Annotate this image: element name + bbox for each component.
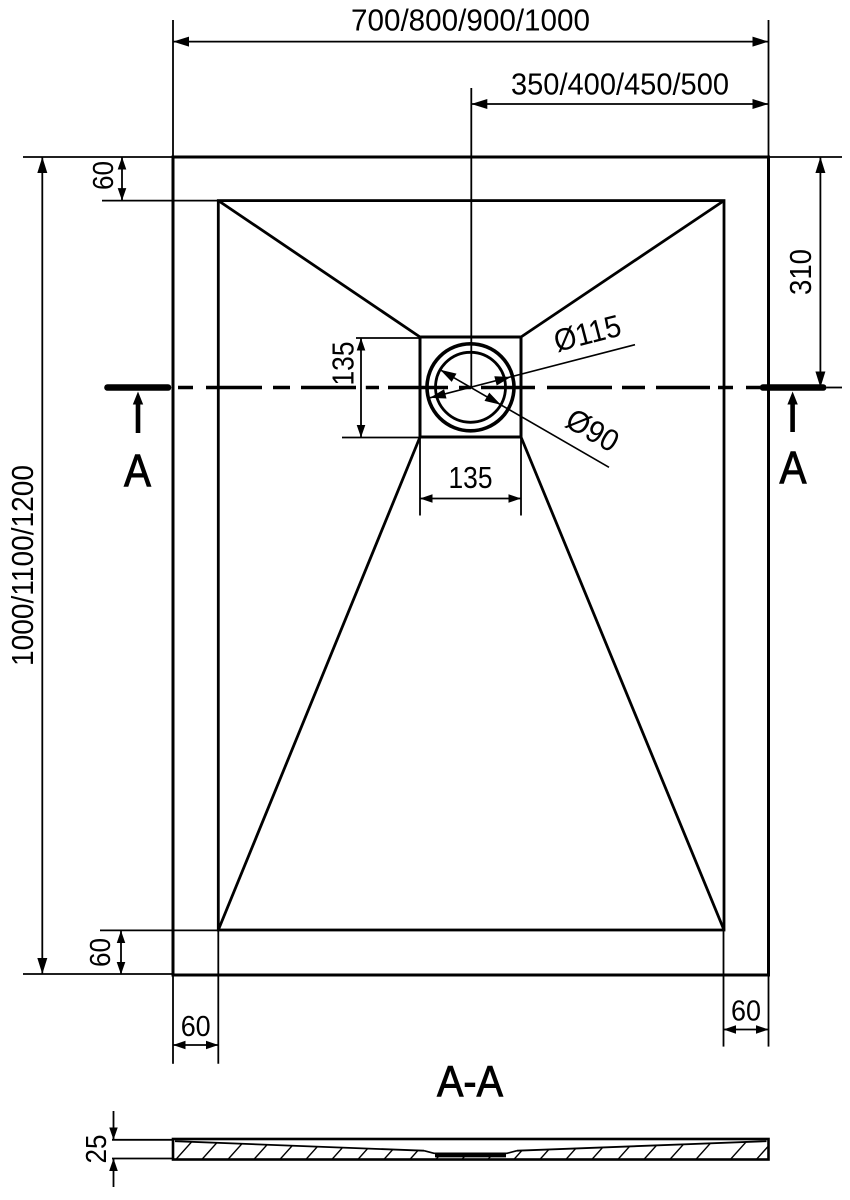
svg-text:350/400/450/500: 350/400/450/500 (511, 67, 729, 102)
svg-text:60: 60 (181, 1011, 211, 1043)
svg-text:135: 135 (449, 460, 493, 495)
svg-text:60: 60 (85, 938, 117, 967)
svg-text:A-A: A-A (437, 1058, 504, 1107)
svg-text:135: 135 (326, 342, 361, 386)
svg-text:60: 60 (88, 161, 120, 190)
svg-text:60: 60 (731, 996, 761, 1028)
svg-text:A: A (780, 442, 807, 493)
svg-text:1000/1100/1200: 1000/1100/1200 (5, 465, 40, 666)
svg-text:310: 310 (783, 249, 818, 295)
svg-text:A: A (124, 445, 151, 496)
svg-text:700/800/900/1000: 700/800/900/1000 (351, 3, 590, 38)
svg-text:25: 25 (81, 1135, 113, 1164)
